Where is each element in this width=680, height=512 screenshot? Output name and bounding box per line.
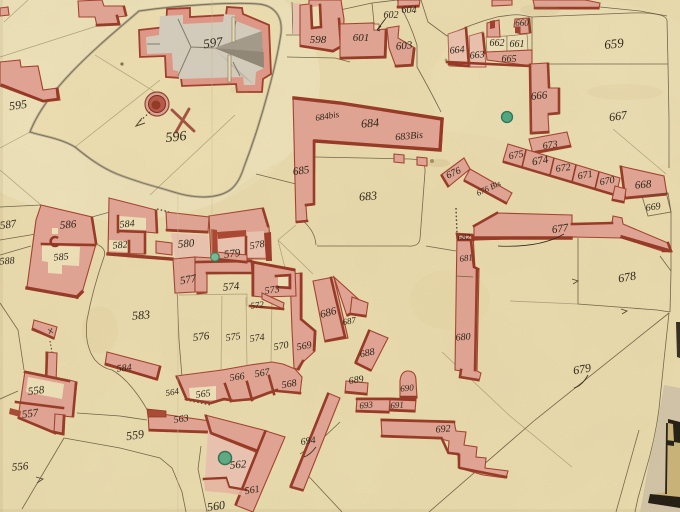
svg-text:662: 662 xyxy=(490,38,505,49)
svg-text:597: 597 xyxy=(202,34,224,52)
svg-text:673: 673 xyxy=(542,139,558,152)
svg-text:601: 601 xyxy=(353,32,370,44)
svg-text:684: 684 xyxy=(360,115,379,131)
svg-text:693: 693 xyxy=(359,399,374,410)
svg-text:560: 560 xyxy=(206,498,226,512)
svg-text:585: 585 xyxy=(53,251,69,263)
svg-text:664: 664 xyxy=(449,44,465,57)
svg-text:559: 559 xyxy=(125,427,145,443)
svg-text:563: 563 xyxy=(173,413,189,426)
svg-text:666: 666 xyxy=(530,89,548,103)
svg-text:580: 580 xyxy=(177,237,195,250)
svg-text:598: 598 xyxy=(310,34,327,46)
svg-text:588: 588 xyxy=(0,255,15,267)
svg-text:661: 661 xyxy=(510,39,525,50)
svg-text:575: 575 xyxy=(225,331,241,344)
svg-text:677: 677 xyxy=(551,222,570,236)
svg-text:694: 694 xyxy=(300,435,316,448)
svg-text:668: 668 xyxy=(634,178,652,191)
svg-text:692: 692 xyxy=(435,423,451,435)
svg-text:689: 689 xyxy=(348,374,364,387)
svg-text:685: 685 xyxy=(292,164,311,178)
svg-text:683: 683 xyxy=(358,188,377,204)
svg-text:660: 660 xyxy=(515,18,529,28)
svg-text:586: 586 xyxy=(59,218,77,231)
svg-text:558: 558 xyxy=(27,384,46,398)
svg-text:603: 603 xyxy=(395,39,413,52)
svg-text:574: 574 xyxy=(222,280,240,293)
svg-text:583: 583 xyxy=(131,307,150,323)
svg-text:584: 584 xyxy=(116,362,132,374)
svg-text:557: 557 xyxy=(21,407,40,421)
svg-text:572: 572 xyxy=(250,299,265,311)
svg-text:669: 669 xyxy=(645,201,661,214)
svg-text:680: 680 xyxy=(455,331,471,343)
svg-text:576: 576 xyxy=(192,330,211,344)
svg-text:596: 596 xyxy=(165,129,187,146)
svg-text:565: 565 xyxy=(195,388,211,401)
svg-text:681: 681 xyxy=(459,252,474,264)
svg-text:602: 602 xyxy=(384,10,399,21)
svg-text:573: 573 xyxy=(264,284,280,297)
svg-text:604: 604 xyxy=(402,5,417,16)
svg-text:663: 663 xyxy=(469,49,485,62)
svg-text:562: 562 xyxy=(229,458,247,471)
svg-text:691: 691 xyxy=(390,399,404,410)
svg-text:690: 690 xyxy=(400,382,415,393)
svg-text:665: 665 xyxy=(502,54,517,65)
svg-text:682: 682 xyxy=(457,231,471,242)
svg-text:659: 659 xyxy=(603,35,624,52)
svg-text:672: 672 xyxy=(555,162,571,175)
svg-text:579: 579 xyxy=(223,247,242,261)
svg-text:574: 574 xyxy=(249,332,265,345)
svg-text:587: 587 xyxy=(0,218,18,232)
svg-text:595: 595 xyxy=(8,97,28,113)
svg-text:566: 566 xyxy=(229,371,245,384)
svg-text:667: 667 xyxy=(608,108,629,125)
svg-text:556: 556 xyxy=(11,460,29,473)
svg-text:582: 582 xyxy=(112,239,128,251)
svg-text:584: 584 xyxy=(119,218,135,230)
